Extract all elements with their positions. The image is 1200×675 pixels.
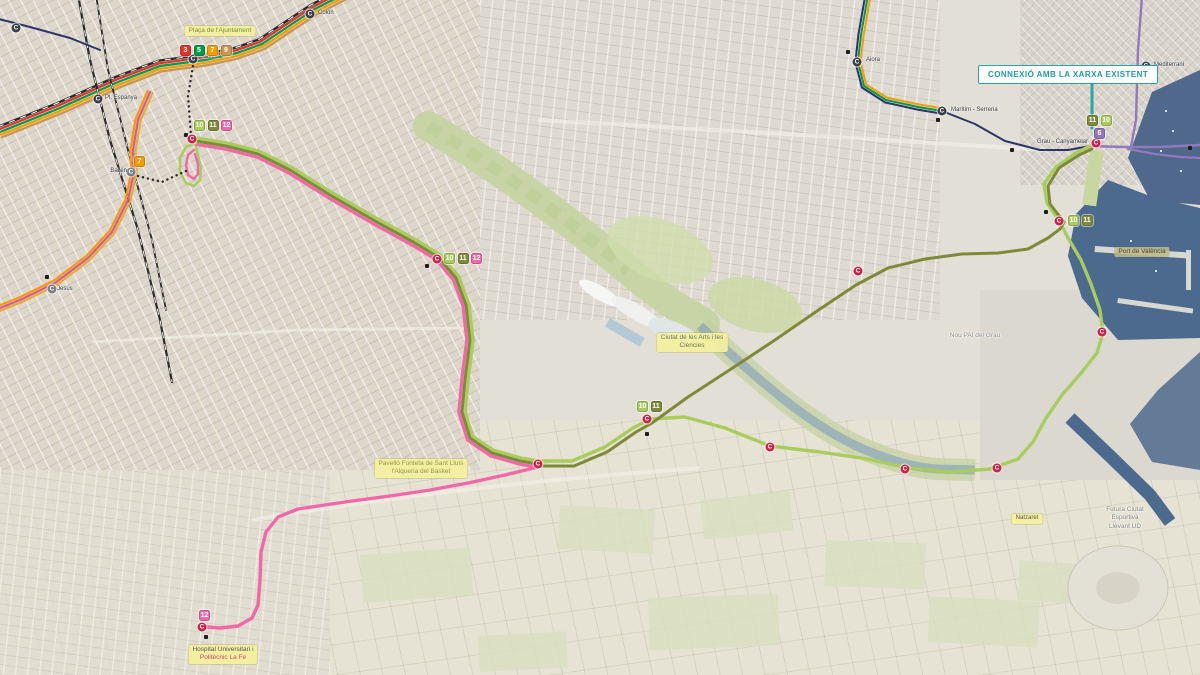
label-fonteta: Pavelló Fonteta de Sant Lluísl'Alqueria … [375, 459, 468, 478]
station-pl-espanya: C [94, 95, 103, 104]
route-line12-trunk [196, 144, 538, 467]
label-natzaret: Natzaret [1012, 514, 1043, 524]
junction-dot [204, 635, 208, 639]
route-line6-southeast [1128, 149, 1200, 158]
station-alacant: C [188, 135, 197, 144]
line-badge-6: 6 [1094, 128, 1105, 139]
line-badge-11: 11 [651, 401, 662, 412]
station-station: C [1098, 328, 1107, 337]
line-badge-11: 11 [458, 253, 469, 264]
line-badge-11: 11 [208, 120, 219, 131]
label-bailen: Bailén [110, 168, 127, 176]
station-jesus: C [48, 285, 57, 294]
route-tunnel-bailen-alacant [138, 171, 186, 182]
station-station: C [433, 255, 442, 264]
line-badge-9: 9 [221, 45, 232, 56]
line-badge-12: 12 [199, 610, 210, 621]
label-mediterrani: Mediterrani [1154, 62, 1184, 70]
line-badge-12: 12 [471, 253, 482, 264]
junction-dot [1044, 210, 1048, 214]
junction-dot [645, 432, 649, 436]
route-line5-aiora [858, 0, 942, 111]
line-badge-10: 10 [637, 401, 648, 412]
label-placa-ajuntament: Plaça de l'Ajuntament [185, 26, 256, 36]
line-badge-7: 7 [134, 156, 145, 167]
station-station: C [854, 267, 863, 276]
line-badge-10: 10 [1101, 115, 1112, 126]
route-line11-east [538, 149, 1092, 466]
station-station: C [643, 415, 652, 424]
route-line12-southwest [207, 467, 538, 628]
line-badge-7: 7 [207, 45, 218, 56]
station-maritim-serreria: C [938, 107, 947, 116]
route-tunnel-xativa-alacant [188, 66, 193, 136]
junction-dot [1010, 148, 1014, 152]
route-line6-main [1090, 145, 1200, 147]
station-station: C [534, 460, 543, 469]
line-badge-10: 10 [1068, 215, 1079, 226]
label-colon: Colón [318, 10, 334, 18]
line-badge-12: 12 [221, 120, 232, 131]
line-badge-10: 10 [194, 120, 205, 131]
label-nou-pai-grau: Nou PAI del Grau [950, 332, 1000, 340]
junction-dot [45, 275, 49, 279]
connection-note: CONNEXIÓ AMB LA XARXA EXISTENT [978, 65, 1158, 84]
line-badge-5: 5 [194, 45, 205, 56]
label-futura-ciutat-esportiva: Futura CiutatEsportivaLlevant UD [1106, 506, 1144, 531]
junction-dot [425, 264, 429, 268]
route-line2-southwest [0, 92, 150, 310]
station-bailen: C [127, 168, 136, 177]
junction-dot [936, 118, 940, 122]
station-station: C [1055, 217, 1064, 226]
station-hospital-la-fe: C [198, 623, 207, 632]
station-station: C [901, 465, 910, 474]
route-layer [0, 0, 1200, 675]
line-badge-11: 11 [1082, 215, 1093, 226]
label-aiora: Aiora [866, 57, 880, 65]
station-colon: C [306, 10, 315, 19]
label-jesus: Jesús [57, 286, 73, 294]
line-badge-11: 11 [1087, 115, 1098, 126]
line-badge-10: 10 [444, 253, 455, 264]
transit-map: CONNEXIÓ AMB LA XARXA EXISTENT CCCCCCCCC… [0, 0, 1200, 675]
route-alacant-loop-inner [186, 150, 198, 179]
label-maritim-serreria: Marítim - Serreria [951, 107, 998, 115]
line-badge-3: 3 [180, 45, 191, 56]
station-aiora: C [853, 58, 862, 67]
route-rail-fan-a [78, 0, 172, 382]
label-port-valencia: Port de València [1114, 247, 1169, 257]
station-nw-corner: C [12, 24, 21, 33]
label-hospital-la-fe: Hospital Universitari iPolitècnic La Fe [188, 645, 257, 664]
junction-dot [846, 50, 850, 54]
route-line11-trunk [196, 141, 538, 464]
label-ciutat-arts: Ciutat de les Arts i lesCiències [657, 333, 728, 352]
route-line10-trunk [197, 138, 539, 461]
junction-dot [1188, 146, 1192, 150]
label-pl-espanya: Pl. Espanya [105, 95, 137, 103]
label-grau-canyamelar: Grau - Canyamelar [1037, 139, 1088, 147]
station-station: C [993, 464, 1002, 473]
station-station: C [766, 443, 775, 452]
station-grau-canyamelar: C [1092, 139, 1101, 148]
